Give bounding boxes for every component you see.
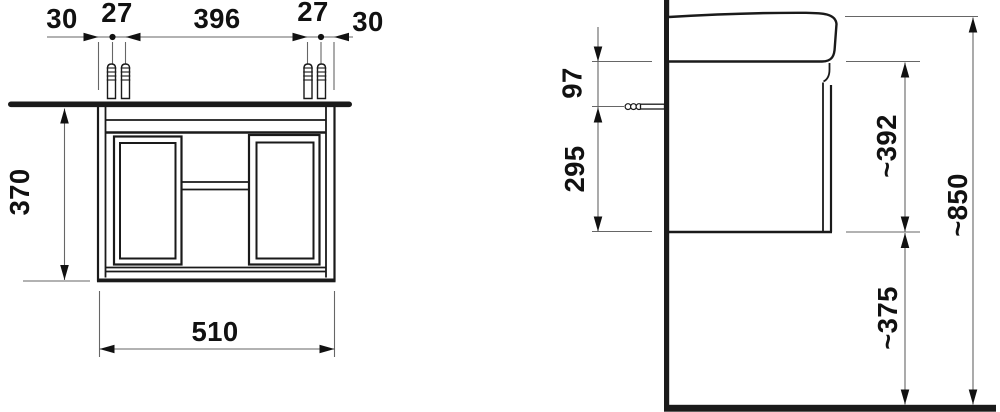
technical-drawing: 30 27 396 27 30 <box>0 0 1000 412</box>
dim-label-width: 510 <box>191 316 238 347</box>
side-dim-fixing: 97 295 <box>557 27 653 232</box>
dim-label-span-center: 396 <box>193 3 240 34</box>
arrow-down <box>901 390 910 405</box>
mounting-screws <box>107 64 327 99</box>
arrow-up <box>60 109 69 124</box>
arrow-up <box>969 18 978 33</box>
front-view: 30 27 396 27 30 <box>4 0 384 357</box>
drawing-canvas: 30 27 396 27 30 <box>0 0 1000 412</box>
door-right-panel <box>257 143 314 259</box>
door-right <box>249 135 320 265</box>
washbasin-profile <box>669 13 837 62</box>
side-dim-total-height: ~850 <box>845 17 978 405</box>
arrow-down <box>594 47 603 62</box>
arrow-down <box>60 265 69 280</box>
dim-label-total-height: ~850 <box>942 173 973 237</box>
dim-label-pair-left: 27 <box>101 0 132 28</box>
arrow-up <box>901 63 910 78</box>
arrow-left <box>100 345 115 354</box>
screw-icon <box>107 64 117 99</box>
cabinet-front <box>97 107 336 282</box>
screw-icon <box>317 64 327 99</box>
side-dim-body-height: ~392 <box>846 62 920 233</box>
arrow-right <box>293 33 308 42</box>
dim-label-edge-left: 30 <box>46 3 77 34</box>
cabinet-side <box>669 63 832 232</box>
arrow-left <box>334 33 349 42</box>
screw-icon <box>303 64 313 99</box>
arrow-down <box>901 217 910 232</box>
countertop-front <box>8 102 352 108</box>
dim-dot <box>318 34 324 40</box>
arrow-right <box>320 345 335 354</box>
dim-label-height: 370 <box>4 168 35 215</box>
cabinet-base-edge <box>97 279 336 283</box>
front-dim-top-chain: 30 27 396 27 30 <box>46 0 383 90</box>
wall-anchor-screw-icon <box>625 104 664 110</box>
front-grip-notch <box>824 63 830 82</box>
arrow-down <box>969 390 978 405</box>
dim-label-pair-right: 27 <box>297 0 328 27</box>
side-dim-clearance: ~375 <box>872 233 909 405</box>
arrow-left <box>126 33 141 42</box>
dim-label-clearance: ~375 <box>872 286 903 350</box>
dim-dot <box>109 34 115 40</box>
side-view: 97 295 ~392 ~375 ~850 <box>557 0 997 412</box>
dim-label-body-height: ~392 <box>871 114 902 178</box>
front-dim-width: 510 <box>100 291 335 357</box>
arrow-up <box>901 233 910 248</box>
dim-label-rail-offset: 97 <box>557 67 588 98</box>
arrow-down <box>594 217 603 232</box>
arrow-up <box>594 108 603 123</box>
front-dim-height: 370 <box>4 109 90 282</box>
arrow-right <box>84 33 99 42</box>
door-left-panel <box>120 143 176 259</box>
floor <box>664 405 996 412</box>
dim-label-rail-to-bottom: 295 <box>559 145 590 192</box>
wall <box>664 0 669 412</box>
dim-label-edge-right: 30 <box>352 6 383 37</box>
screw-icon <box>121 64 131 99</box>
door-left <box>114 137 182 265</box>
